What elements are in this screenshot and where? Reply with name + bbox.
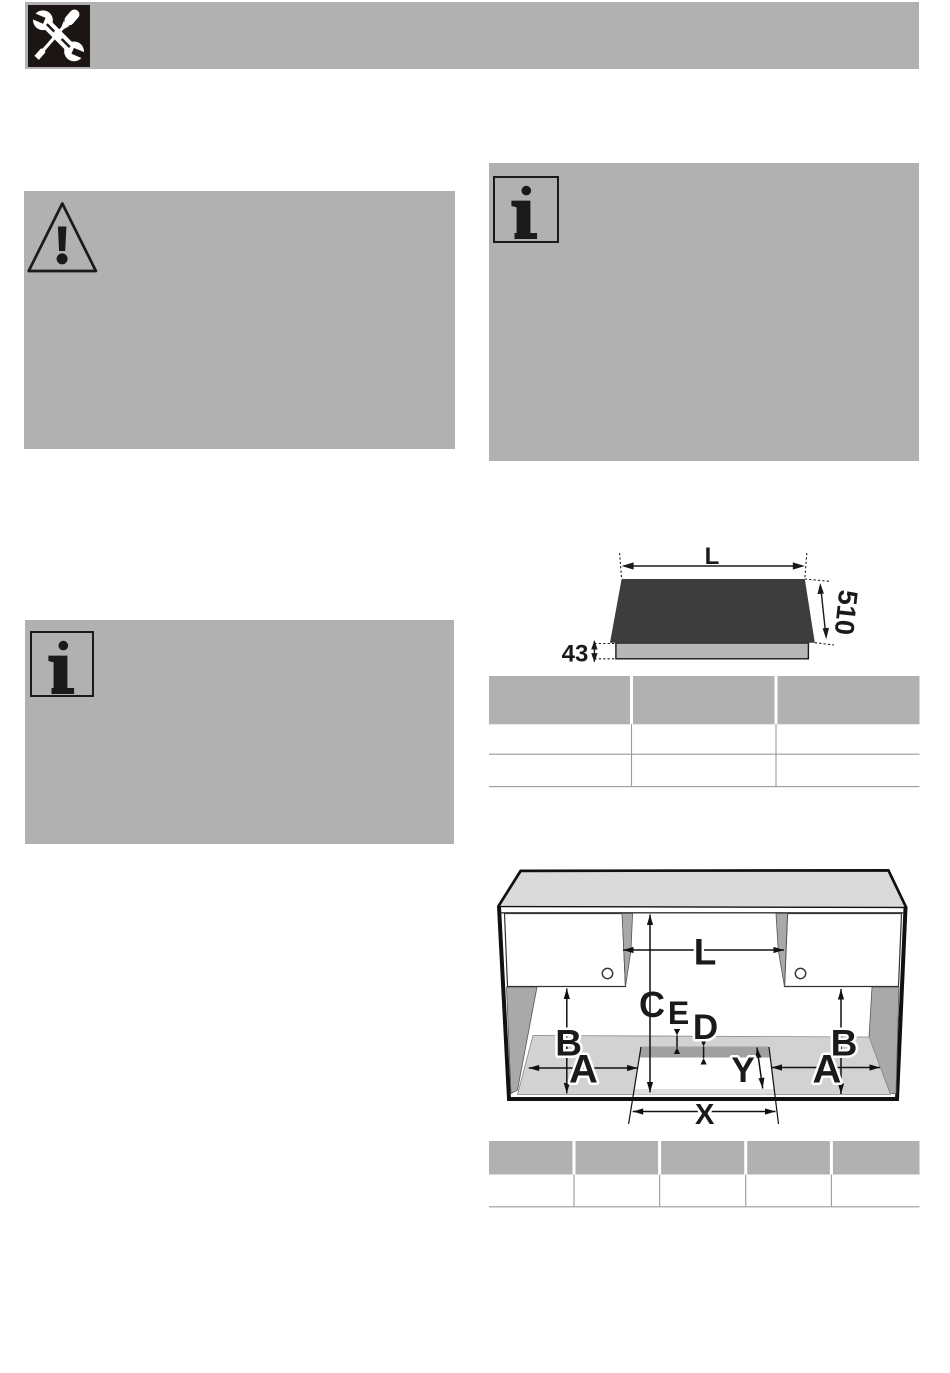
svg-text:A: A bbox=[813, 1048, 842, 1092]
svg-text:X: X bbox=[695, 1099, 715, 1131]
svg-text:L: L bbox=[705, 543, 720, 570]
svg-text:43: 43 bbox=[562, 641, 589, 668]
svg-text:510: 510 bbox=[829, 588, 864, 636]
svg-text:E: E bbox=[668, 995, 689, 1031]
svg-text:L: L bbox=[694, 932, 717, 973]
svg-text:Y: Y bbox=[731, 1051, 754, 1090]
svg-text:D: D bbox=[693, 1008, 718, 1047]
svg-text:C: C bbox=[639, 984, 665, 1025]
svg-text:A: A bbox=[569, 1048, 598, 1092]
